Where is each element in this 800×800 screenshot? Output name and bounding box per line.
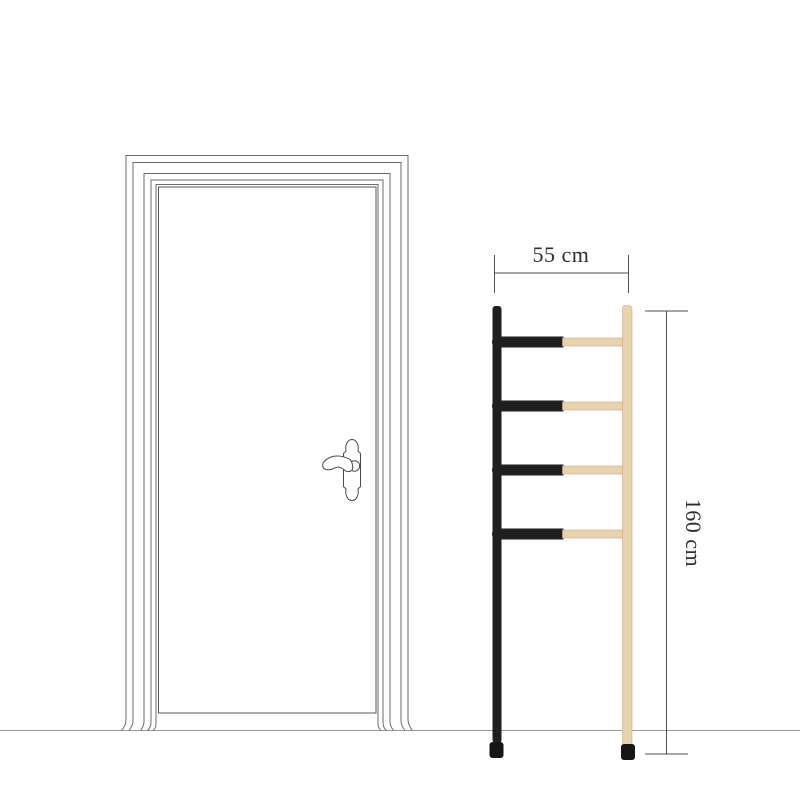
- rung-black-segment: [492, 465, 563, 476]
- rung-wood-segment: [563, 466, 629, 474]
- ladder-left-rail-black: [493, 306, 502, 743]
- door-handle-icon: [323, 440, 361, 501]
- ladder-rung-4: [492, 529, 628, 540]
- diagram-canvas: [0, 0, 800, 800]
- rung-wood-segment: [563, 402, 629, 410]
- door-drawing: [122, 156, 413, 731]
- door-frame-line: [122, 156, 413, 731]
- door-frame-line: [129, 163, 405, 731]
- ladder-rung-1: [492, 337, 628, 348]
- ladder-foot-right: [621, 744, 635, 760]
- rung-black-segment: [492, 529, 563, 540]
- ladder-foot-left: [490, 742, 504, 758]
- ladder-right-rail-wood: [623, 306, 633, 746]
- rung-black-segment: [492, 401, 563, 412]
- ladder-rung-3: [492, 465, 628, 476]
- door-handle-lever: [323, 456, 353, 472]
- width-dimension-label: 55 cm: [496, 243, 626, 267]
- door-panel: [159, 187, 377, 713]
- rung-wood-segment: [563, 530, 629, 538]
- rung-wood-segment: [563, 338, 629, 346]
- rung-black-segment: [492, 337, 563, 348]
- height-dimension-label: 160 cm: [681, 473, 705, 593]
- product-dimension-diagram: 55 cm 160 cm: [0, 0, 800, 800]
- ladder-drawing: [490, 306, 636, 761]
- ladder-rung-2: [492, 401, 628, 412]
